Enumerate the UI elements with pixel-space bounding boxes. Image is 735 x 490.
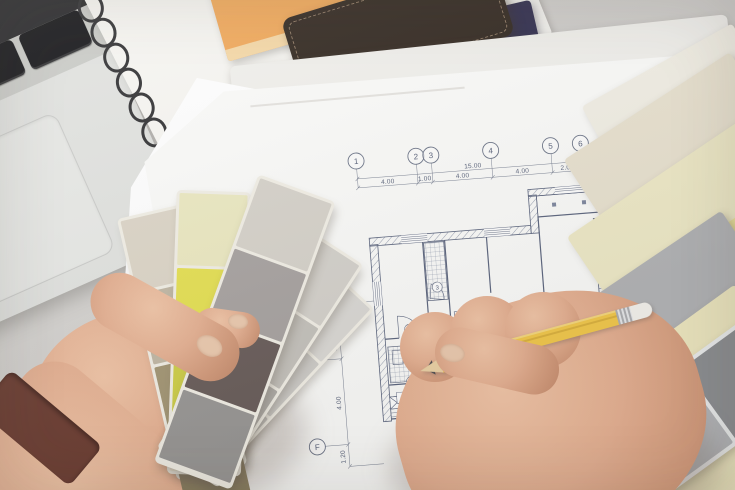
grid-label: F (315, 443, 321, 452)
dimension-label: 15.00 (464, 162, 482, 170)
dimension-label: 4.00 (381, 178, 395, 186)
dimension-label: 4.00 (456, 172, 470, 180)
dimension-label: 1.20 (340, 450, 348, 464)
dimension-label: 1.50 (329, 310, 337, 324)
grid-label: E (308, 357, 314, 366)
grid-label: D (305, 324, 312, 333)
dimension-label: 1.00 (418, 175, 432, 183)
dimension-label: 4.00 (335, 396, 343, 410)
dimension-label: 1.50 (331, 337, 339, 351)
photo-architect-desk-scene: 1 2 3 4 5 6 D E F 15.00 4.00 1.00 4.00 4… (0, 0, 735, 490)
dimension-label: 4.00 (515, 167, 529, 175)
